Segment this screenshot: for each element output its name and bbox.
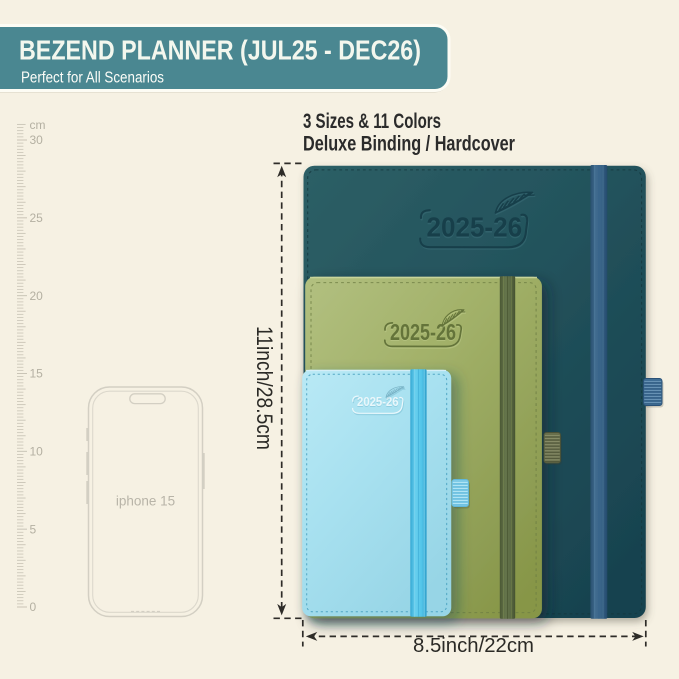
svg-text:3 Sizes & 11 Colors: 3 Sizes & 11 Colors: [303, 110, 441, 133]
svg-text:0: 0: [30, 600, 37, 614]
svg-text:8.5inch/22cm: 8.5inch/22cm: [413, 634, 534, 657]
svg-text:10: 10: [30, 445, 44, 459]
svg-text:iphone 15: iphone 15: [116, 494, 175, 509]
svg-text:15: 15: [30, 367, 44, 381]
svg-text:30: 30: [30, 133, 44, 147]
svg-text:Deluxe Binding / Hardcover: Deluxe Binding / Hardcover: [303, 133, 515, 156]
svg-text:20: 20: [30, 289, 44, 303]
svg-text:11inch/28.5cm: 11inch/28.5cm: [252, 326, 277, 450]
svg-text:BEZEND PLANNER (JUL25 - DEC26): BEZEND PLANNER (JUL25 - DEC26): [19, 35, 421, 66]
svg-text:5: 5: [30, 522, 37, 536]
svg-text:Perfect for All Scenarios: Perfect for All Scenarios: [21, 70, 164, 87]
svg-text:cm: cm: [30, 118, 46, 132]
svg-text:2025-26: 2025-26: [427, 212, 523, 243]
svg-text:25: 25: [30, 211, 44, 225]
